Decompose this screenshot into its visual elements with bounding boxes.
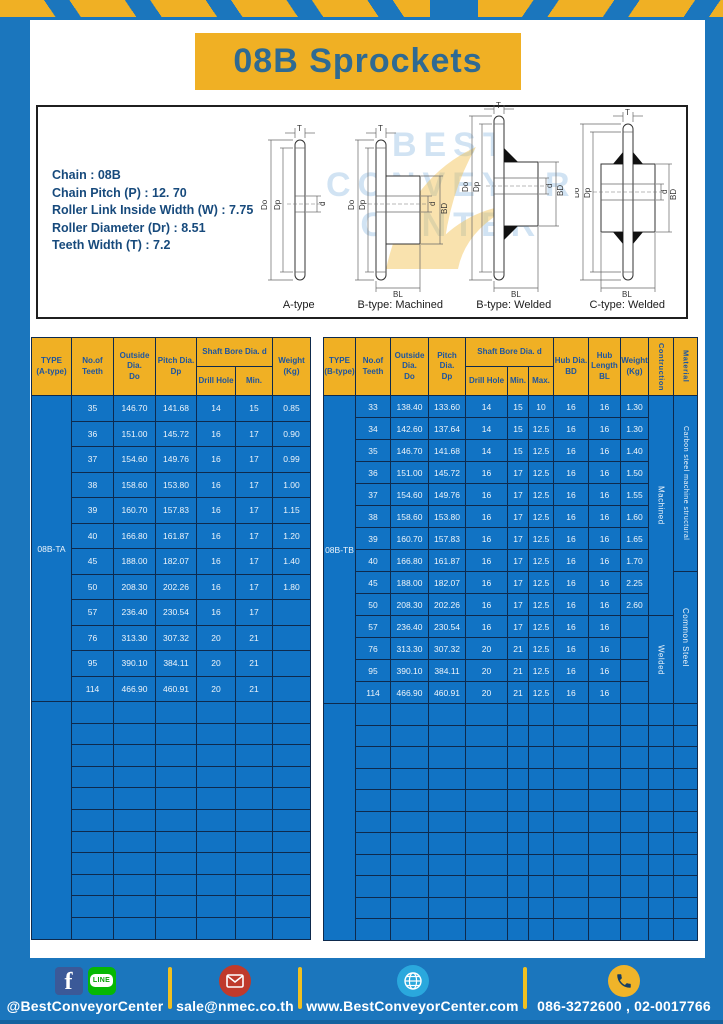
table-cell <box>72 918 114 940</box>
table-cell: 17 <box>508 572 529 594</box>
dim-label-do: Do <box>462 181 470 192</box>
table-cell: 16 <box>197 447 236 473</box>
table-cell: 17 <box>236 600 273 626</box>
table-cell: 141.68 <box>156 396 197 422</box>
table-cell <box>236 896 273 918</box>
dim-label-d: d <box>318 202 327 206</box>
table-cell <box>72 896 114 918</box>
table-cell <box>508 812 529 834</box>
table-cell: 1.40 <box>621 440 649 462</box>
dim-label-do: Do <box>348 199 356 210</box>
table-cell: 182.07 <box>429 572 466 594</box>
table-cell <box>156 875 197 897</box>
table-cell: 17 <box>508 594 529 616</box>
dim-label-t: T <box>378 124 383 133</box>
table-cell: 17 <box>236 447 273 473</box>
table-cell <box>429 833 466 855</box>
table-cell <box>273 626 311 652</box>
dim-label-d: d <box>660 190 669 194</box>
table-cell: 12.5 <box>529 418 554 440</box>
table-cell <box>236 745 273 767</box>
table-cell: 1.30 <box>621 396 649 418</box>
table-cell <box>114 918 156 940</box>
table-cell: Min. <box>508 367 529 396</box>
table-cell <box>589 833 621 855</box>
table-cell: 16 <box>554 682 589 704</box>
spec-line: Roller Link Inside Width (W) : 7.75 <box>52 202 253 220</box>
table-cell: 16 <box>197 524 236 550</box>
table-cell: 1.00 <box>273 473 311 499</box>
table-cell: 138.40 <box>391 396 429 418</box>
table-cell: 2.60 <box>621 594 649 616</box>
table-cell: 15 <box>508 418 529 440</box>
table-cell: 38 <box>356 506 391 528</box>
dim-label-t: T <box>297 124 302 133</box>
table-cell: 95 <box>356 660 391 682</box>
table-cell <box>156 702 197 724</box>
table-cell <box>429 790 466 812</box>
table-cell <box>674 726 698 748</box>
table-cell: 460.91 <box>156 677 197 703</box>
drawing-caption: C-type: Welded <box>589 299 665 311</box>
table-cell <box>529 876 554 898</box>
table-cell <box>649 769 674 791</box>
table-cell: 153.80 <box>429 506 466 528</box>
table-cell <box>529 747 554 769</box>
table-cell <box>508 747 529 769</box>
globe-icon <box>397 965 429 997</box>
table-cell <box>114 702 156 724</box>
table-cell <box>649 704 674 726</box>
dim-label-dp: Dp <box>472 181 481 192</box>
table-cell: 16 <box>197 422 236 448</box>
email-text: sale@nmec.co.th <box>176 998 294 1014</box>
table-cell <box>236 767 273 789</box>
table-cell: 157.83 <box>429 528 466 550</box>
table-cell: 17 <box>508 484 529 506</box>
table-cell <box>529 726 554 748</box>
dim-label-d: d <box>545 184 554 188</box>
table-cell <box>236 832 273 854</box>
table-cell <box>554 812 589 834</box>
table-cell <box>429 855 466 877</box>
table-cell <box>466 898 508 920</box>
table-cell: 188.00 <box>114 549 156 575</box>
table-cell <box>156 832 197 854</box>
table-cell: 114 <box>72 677 114 703</box>
table-cell <box>649 919 674 941</box>
table-cell: 16 <box>589 594 621 616</box>
table-cell: 313.30 <box>114 626 156 652</box>
table-cell <box>508 726 529 748</box>
table-cell <box>674 855 698 877</box>
table-cell: 236.40 <box>391 616 429 638</box>
table-cell: 16 <box>554 572 589 594</box>
dim-label-bl: BL <box>511 290 521 298</box>
table-cell: 16 <box>589 418 621 440</box>
table-cell: 16 <box>589 616 621 638</box>
c-type-welded-drawing: T Do Dp d <box>575 108 679 314</box>
table-cell <box>621 682 649 704</box>
table-cell: Welded <box>649 616 674 704</box>
table-cell: No.of Teeth <box>356 338 391 396</box>
table-cell <box>273 767 311 789</box>
table-cell <box>273 651 311 677</box>
table-cell <box>466 726 508 748</box>
table-cell: Drill Hole <box>197 367 236 396</box>
table-cell <box>429 726 466 748</box>
table-cell <box>72 767 114 789</box>
table-cell <box>391 833 429 855</box>
b-type-machined-drawing: T Do Dp d BD <box>348 122 452 314</box>
table-cell <box>429 769 466 791</box>
table-cell: 12.5 <box>529 682 554 704</box>
table-cell: 133.60 <box>429 396 466 418</box>
table-cell <box>589 855 621 877</box>
table-cell <box>391 747 429 769</box>
table-cell: 17 <box>236 549 273 575</box>
table-cell: 1.20 <box>273 524 311 550</box>
table-cell <box>621 704 649 726</box>
table-cell: 50 <box>72 575 114 601</box>
table-cell: 1.55 <box>621 484 649 506</box>
table-cell <box>589 812 621 834</box>
table-cell: 39 <box>72 498 114 524</box>
drawing-caption: B-type: Machined <box>357 299 443 311</box>
dim-label-do: Do <box>575 187 581 198</box>
table-cell <box>589 876 621 898</box>
table-cell: 21 <box>236 651 273 677</box>
table-cell: 15 <box>508 440 529 462</box>
table-cell <box>508 704 529 726</box>
table-cell: 16 <box>197 473 236 499</box>
table-cell: 166.80 <box>391 550 429 572</box>
table-cell: 307.32 <box>156 626 197 652</box>
table-cell: Shaft Bore Dia. d <box>197 338 273 367</box>
table-cell <box>391 855 429 877</box>
table-cell: 16 <box>589 550 621 572</box>
table-cell <box>621 855 649 877</box>
table-cell <box>273 810 311 832</box>
table-cell <box>356 898 391 920</box>
table-cell <box>621 726 649 748</box>
table-cell: 16 <box>589 638 621 660</box>
table-cell: 16 <box>554 396 589 418</box>
table-cell: 154.60 <box>391 484 429 506</box>
dim-label-bd: BD <box>669 189 678 200</box>
table-cell: Material <box>674 338 698 396</box>
spec-line: Chain : 08B <box>52 167 253 185</box>
table-cell: TYPE (A-type) <box>32 338 72 396</box>
table-cell <box>649 833 674 855</box>
table-cell: 182.07 <box>156 549 197 575</box>
table-cell <box>356 747 391 769</box>
table-cell <box>273 832 311 854</box>
table-cell <box>273 918 311 940</box>
table-cell <box>391 726 429 748</box>
table-cell <box>72 875 114 897</box>
table-cell <box>356 919 391 941</box>
table-cell: 36 <box>356 462 391 484</box>
table-cell <box>589 898 621 920</box>
a-type-drawing: T Do Dp d A-type <box>259 122 339 314</box>
catalog-sheet: { "title": "08B Sprockets", "specs": [ "… <box>0 0 723 1024</box>
table-cell: 16 <box>554 528 589 550</box>
table-cell: 12.5 <box>529 550 554 572</box>
table-cell <box>236 875 273 897</box>
table-cell: Outside Dia. Do <box>114 338 156 396</box>
table-cell <box>324 704 356 941</box>
table-cell <box>72 810 114 832</box>
table-cell <box>589 769 621 791</box>
table-cell: 08B-TB <box>324 396 356 704</box>
table-cell <box>72 853 114 875</box>
table-cell: 76 <box>356 638 391 660</box>
table-cell: 16 <box>554 594 589 616</box>
email-icon <box>219 965 251 997</box>
table-cell: 208.30 <box>391 594 429 616</box>
table-cell <box>554 726 589 748</box>
table-cell <box>114 767 156 789</box>
table-cell: 16 <box>197 549 236 575</box>
social-icons: f LINE <box>55 965 116 997</box>
table-cell: 14 <box>197 396 236 422</box>
table-cell <box>236 788 273 810</box>
table-cell <box>156 810 197 832</box>
table-cell <box>674 833 698 855</box>
table-cell <box>72 702 114 724</box>
table-cell: 35 <box>356 440 391 462</box>
table-cell <box>197 896 236 918</box>
table-cell <box>649 747 674 769</box>
table-cell: Machined <box>649 396 674 616</box>
table-cell <box>236 810 273 832</box>
table-cell: 17 <box>236 498 273 524</box>
table-cell <box>466 876 508 898</box>
phone-icon <box>608 965 640 997</box>
table-cell <box>674 790 698 812</box>
dim-label-t: T <box>496 102 501 110</box>
table-cell: 16 <box>466 616 508 638</box>
table-cell: 158.60 <box>114 473 156 499</box>
table-cell: 149.76 <box>429 484 466 506</box>
table-cell <box>649 855 674 877</box>
table-cell: 154.60 <box>114 447 156 473</box>
table-cell <box>356 769 391 791</box>
table-cell <box>273 677 311 703</box>
table-cell <box>554 704 589 726</box>
table-cell: Hub Length BL <box>589 338 621 396</box>
table-cell: 390.10 <box>114 651 156 677</box>
table-cell: 161.87 <box>429 550 466 572</box>
sprocket-drawings: T Do Dp d A-type <box>254 109 684 314</box>
table-cell: 16 <box>466 506 508 528</box>
table-cell: 33 <box>356 396 391 418</box>
table-cell: 16 <box>197 600 236 626</box>
table-cell: 16 <box>589 484 621 506</box>
table-cell <box>156 788 197 810</box>
table-cell: 17 <box>236 422 273 448</box>
table-cell: 16 <box>589 396 621 418</box>
table-cell: 16 <box>589 572 621 594</box>
table-cell: 0.90 <box>273 422 311 448</box>
table-cell: Max. <box>529 367 554 396</box>
table-cell: 40 <box>72 524 114 550</box>
table-cell <box>621 790 649 812</box>
table-cell <box>429 747 466 769</box>
table-cell: 12.5 <box>529 528 554 550</box>
table-cell <box>72 745 114 767</box>
table-cell: 230.54 <box>156 600 197 626</box>
table-cell: 20 <box>466 638 508 660</box>
table-cell <box>649 876 674 898</box>
dim-label-bd: BD <box>440 203 449 214</box>
table-cell: 466.90 <box>114 677 156 703</box>
table-cell: 16 <box>466 594 508 616</box>
table-cell: 12.5 <box>529 660 554 682</box>
table-cell: 12.5 <box>529 462 554 484</box>
table-cell <box>156 724 197 746</box>
table-cell <box>554 747 589 769</box>
table-cell <box>554 855 589 877</box>
table-cell <box>236 853 273 875</box>
table-cell: 17 <box>236 473 273 499</box>
table-cell: 12.5 <box>529 572 554 594</box>
table-cell: 76 <box>72 626 114 652</box>
table-cell <box>554 769 589 791</box>
table-cell: 157.83 <box>156 498 197 524</box>
table-cell <box>156 918 197 940</box>
table-cell <box>114 875 156 897</box>
drawing-caption: A-type <box>283 299 315 311</box>
chain-specs: Chain : 08B Chain Pitch (P) : 12. 70 Rol… <box>52 167 253 255</box>
table-cell: 21 <box>508 638 529 660</box>
table-cell: 17 <box>236 575 273 601</box>
table-cell <box>197 853 236 875</box>
table-cell: 151.00 <box>391 462 429 484</box>
table-cell: 16 <box>589 506 621 528</box>
table-cell <box>674 812 698 834</box>
table-cell <box>529 833 554 855</box>
table-cell <box>236 918 273 940</box>
table-cell: 236.40 <box>114 600 156 626</box>
table-cell: 16 <box>589 528 621 550</box>
table-cell <box>273 788 311 810</box>
table-cell <box>508 855 529 877</box>
table-cell: 16 <box>466 462 508 484</box>
table-cell: 160.70 <box>391 528 429 550</box>
table-cell: 166.80 <box>114 524 156 550</box>
table-cell: 16 <box>589 682 621 704</box>
table-cell <box>197 810 236 832</box>
table-cell: 15 <box>508 396 529 418</box>
table-cell <box>156 853 197 875</box>
table-cell <box>273 702 311 724</box>
table-cell <box>466 812 508 834</box>
table-cell <box>621 638 649 660</box>
social-handle: @BestConveyorCenter <box>7 998 164 1014</box>
table-cell <box>197 918 236 940</box>
table-cell: 16 <box>554 550 589 572</box>
spec-line: Teeth Width (T) : 7.2 <box>52 237 253 255</box>
table-cell: 151.00 <box>114 422 156 448</box>
table-cell: 16 <box>554 484 589 506</box>
table-cell: 16 <box>466 528 508 550</box>
footer-divider <box>168 967 172 1009</box>
table-cell: 16 <box>554 638 589 660</box>
table-cell <box>674 898 698 920</box>
table-cell <box>466 704 508 726</box>
table-cell <box>391 790 429 812</box>
table-cell: 08B-TA <box>32 396 72 702</box>
table-cell <box>529 704 554 726</box>
table-cell: 20 <box>197 651 236 677</box>
dim-label-bl: BL <box>393 290 403 298</box>
table-cell <box>508 790 529 812</box>
table-cell <box>391 812 429 834</box>
dim-label-do: Do <box>260 199 269 210</box>
table-cell: 12.5 <box>529 506 554 528</box>
facebook-icon: f <box>55 967 83 995</box>
table-cell <box>508 898 529 920</box>
table-cell: 16 <box>197 498 236 524</box>
b-type-spec-table: TYPE (B-type)No.of TeethOutside Dia. DoP… <box>323 337 698 941</box>
table-cell: 39 <box>356 528 391 550</box>
drawing-caption: B-type: Welded <box>476 299 551 311</box>
footer-email-section: sale@nmec.co.th <box>170 958 300 1020</box>
table-cell <box>273 745 311 767</box>
table-cell: 20 <box>466 682 508 704</box>
table-cell <box>621 769 649 791</box>
table-cell <box>649 898 674 920</box>
table-cell: 17 <box>508 506 529 528</box>
table-cell <box>621 833 649 855</box>
table-cell: 142.60 <box>391 418 429 440</box>
table-cell: 145.72 <box>156 422 197 448</box>
table-cell: Min. <box>236 367 273 396</box>
table-cell <box>466 855 508 877</box>
table-cell <box>674 919 698 941</box>
table-cell <box>529 812 554 834</box>
table-cell: 16 <box>554 660 589 682</box>
table-cell <box>32 702 72 940</box>
table-cell: 37 <box>356 484 391 506</box>
table-cell <box>466 833 508 855</box>
table-cell <box>429 812 466 834</box>
table-cell <box>554 898 589 920</box>
table-cell <box>391 704 429 726</box>
table-cell: 14 <box>466 418 508 440</box>
table-cell: 20 <box>197 677 236 703</box>
table-cell: 466.90 <box>391 682 429 704</box>
website-text: www.BestConveyorCenter.com <box>306 998 518 1014</box>
table-cell: 161.87 <box>156 524 197 550</box>
table-cell <box>529 898 554 920</box>
table-cell <box>114 745 156 767</box>
table-cell <box>621 660 649 682</box>
table-cell <box>114 788 156 810</box>
table-cell: Pitch Dia. Dp <box>156 338 197 396</box>
table-cell <box>273 896 311 918</box>
table-cell <box>114 896 156 918</box>
table-cell <box>429 898 466 920</box>
table-cell <box>508 769 529 791</box>
table-cell <box>156 896 197 918</box>
table-cell <box>621 812 649 834</box>
table-cell <box>391 876 429 898</box>
table-cell <box>554 876 589 898</box>
table-cell: Common Steel <box>674 572 698 704</box>
